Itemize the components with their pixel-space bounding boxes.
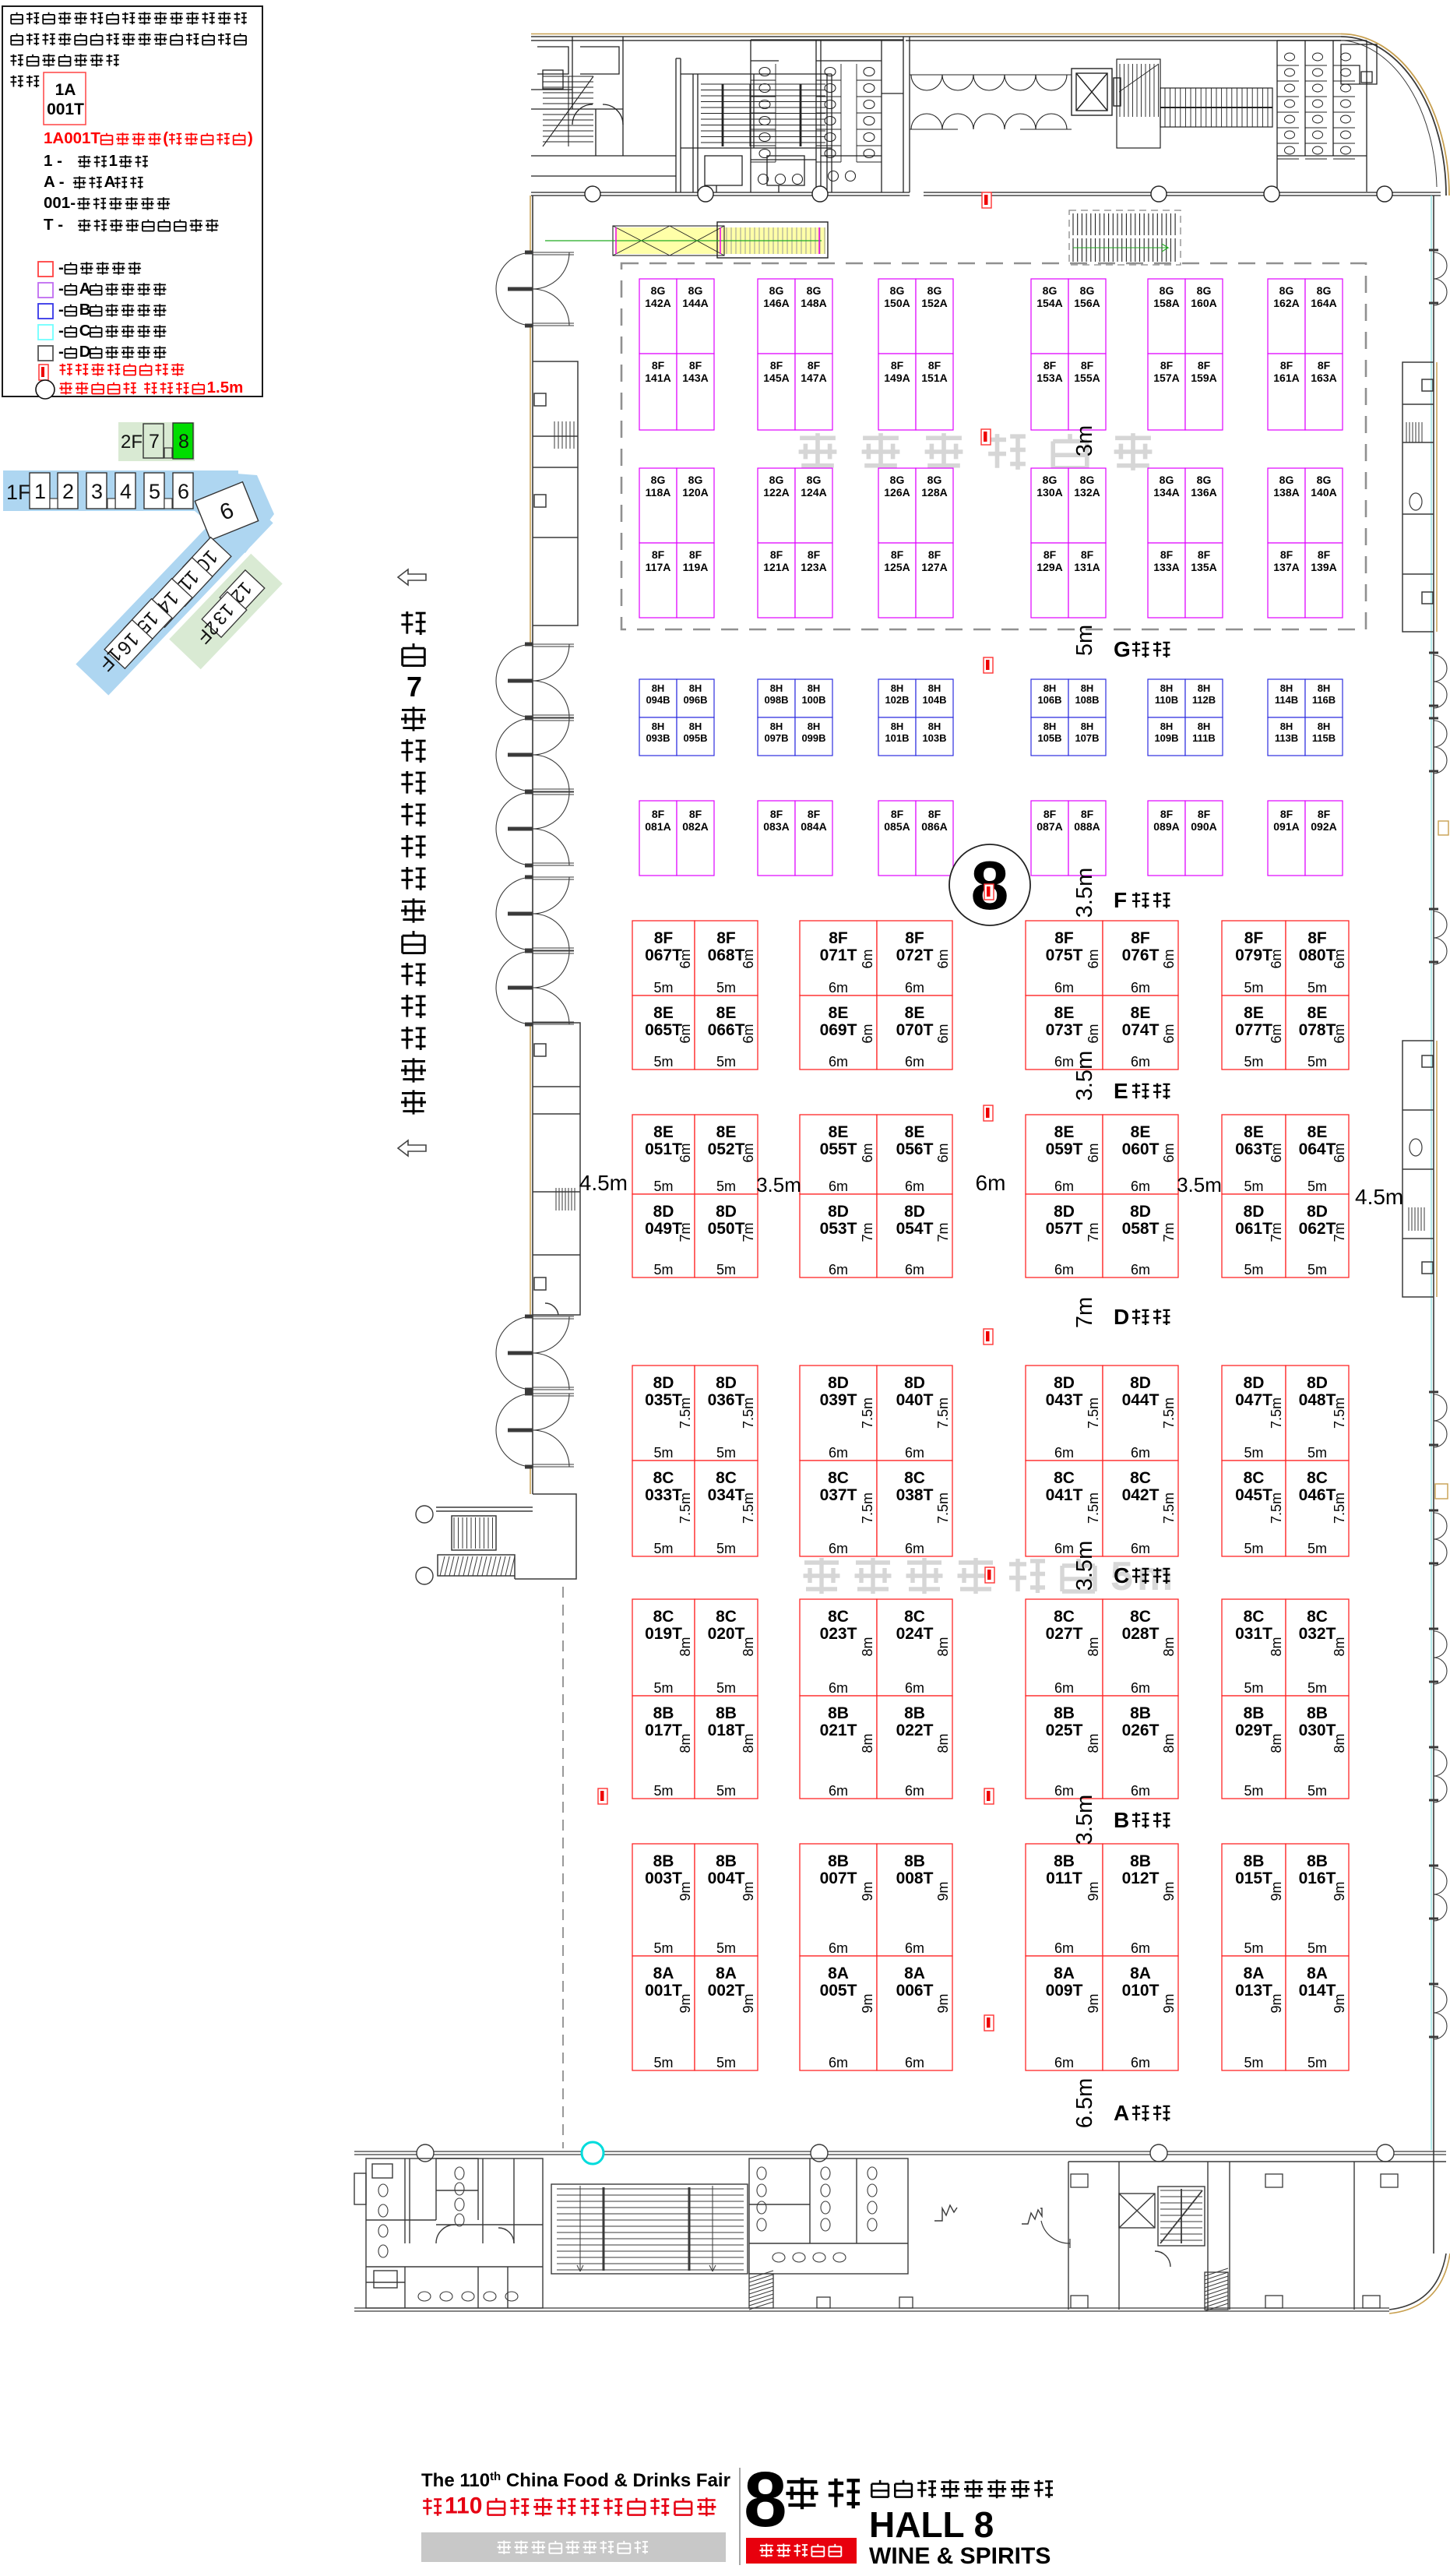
svg-text:6m: 6m (1054, 1680, 1074, 1696)
svg-text:8F: 8F (1160, 808, 1174, 820)
svg-text:5m: 5m (1307, 1940, 1327, 1956)
svg-text:-: - (58, 343, 64, 361)
svg-text:6m: 6m (935, 1024, 951, 1043)
svg-text:041T: 041T (1046, 1486, 1083, 1504)
svg-text:A: A (104, 173, 116, 191)
svg-text:6m: 6m (829, 1541, 848, 1556)
svg-text:8F: 8F (1280, 548, 1293, 561)
svg-text:8: 8 (744, 2456, 787, 2543)
svg-text:8B: 8B (653, 1704, 674, 1722)
svg-text:8H: 8H (1081, 721, 1094, 732)
svg-text:095B: 095B (683, 732, 707, 744)
svg-text:8D: 8D (716, 1203, 737, 1221)
svg-text:7: 7 (406, 671, 422, 703)
svg-text:009T: 009T (1046, 1982, 1083, 2000)
svg-text:6m: 6m (860, 1143, 875, 1162)
svg-text:6m: 6m (829, 1783, 848, 1799)
svg-text:159A: 159A (1191, 372, 1216, 384)
svg-text:The 110th China Food & Drinks: The 110th China Food & Drinks Fair (421, 2470, 730, 2491)
svg-text:128A: 128A (921, 486, 947, 499)
svg-text:8G: 8G (1160, 474, 1174, 486)
svg-text:8F: 8F (1198, 808, 1211, 820)
svg-text:8m: 8m (1086, 1637, 1101, 1656)
svg-text:8F: 8F (1081, 359, 1094, 372)
svg-text:9m: 9m (677, 1993, 693, 2013)
svg-text:008T: 008T (896, 1869, 934, 1887)
svg-text:HALL 8: HALL 8 (869, 2504, 994, 2545)
svg-text:086A: 086A (921, 820, 947, 833)
svg-text:8E: 8E (1307, 1004, 1328, 1022)
svg-text:9m: 9m (1332, 1881, 1347, 1901)
svg-text:A: A (1114, 2101, 1129, 2125)
svg-text:121A: 121A (763, 561, 789, 573)
svg-text:135A: 135A (1191, 561, 1216, 573)
svg-text:127A: 127A (921, 561, 947, 573)
svg-text:6m: 6m (905, 1783, 924, 1799)
svg-text:016T: 016T (1299, 1869, 1336, 1887)
svg-text:8m: 8m (1332, 1637, 1347, 1656)
svg-text:122A: 122A (763, 486, 789, 499)
svg-text:6m: 6m (1131, 1680, 1150, 1696)
svg-text:8E: 8E (1054, 1004, 1075, 1022)
svg-text:7.5m: 7.5m (741, 1397, 756, 1429)
svg-text:8F: 8F (1307, 929, 1327, 947)
svg-text:126A: 126A (884, 486, 910, 499)
svg-text:-: - (58, 301, 64, 319)
svg-text:8C: 8C (716, 1469, 737, 1487)
svg-text:6m: 6m (1054, 1445, 1074, 1461)
svg-text:8m: 8m (741, 1733, 756, 1753)
svg-text:6m: 6m (1086, 1143, 1101, 1162)
svg-text:8H: 8H (1081, 682, 1094, 694)
svg-text:6m: 6m (905, 1054, 924, 1070)
svg-text:005T: 005T (820, 1982, 857, 2000)
svg-text:045T: 045T (1235, 1486, 1272, 1504)
svg-text:119A: 119A (683, 561, 709, 573)
svg-text:E: E (1114, 1079, 1128, 1103)
svg-text:6m: 6m (935, 1143, 951, 1162)
svg-text:6m: 6m (1269, 949, 1284, 968)
svg-text:8B: 8B (1307, 1852, 1328, 1870)
svg-text:6m: 6m (1131, 1054, 1150, 1070)
svg-text:8G: 8G (927, 474, 942, 486)
svg-text:8F: 8F (1081, 548, 1094, 561)
svg-text:085A: 085A (884, 820, 910, 833)
svg-text:8G: 8G (651, 474, 666, 486)
svg-text:070T: 070T (896, 1021, 934, 1039)
svg-text:8G: 8G (1317, 284, 1332, 297)
svg-text:6m: 6m (1161, 1143, 1177, 1162)
svg-text:9m: 9m (677, 1881, 693, 1901)
svg-text:3: 3 (91, 480, 103, 503)
svg-text:8G: 8G (1197, 284, 1212, 297)
svg-text:B: B (79, 301, 91, 319)
svg-text:F: F (1114, 888, 1127, 912)
svg-text:102B: 102B (885, 694, 909, 706)
svg-text:6m: 6m (1332, 949, 1347, 968)
svg-text:8C: 8C (653, 1608, 674, 1626)
svg-text:103B: 103B (922, 732, 946, 744)
svg-text:106B: 106B (1037, 694, 1061, 706)
svg-text:7.5m: 7.5m (1086, 1397, 1101, 1429)
svg-text:007T: 007T (820, 1869, 857, 1887)
svg-text:078T: 078T (1299, 1021, 1336, 1039)
svg-text:8D: 8D (1054, 1203, 1075, 1221)
svg-text:8F: 8F (689, 548, 702, 561)
svg-text:6m: 6m (829, 1054, 848, 1070)
svg-text:5m: 5m (716, 1262, 736, 1277)
svg-text:8A: 8A (904, 1965, 925, 1982)
svg-text:8B: 8B (1130, 1852, 1151, 1870)
svg-text:8D: 8D (1130, 1374, 1151, 1392)
svg-text:6m: 6m (1269, 1024, 1284, 1043)
svg-text:8m: 8m (1269, 1637, 1284, 1656)
svg-text:6m: 6m (1054, 1179, 1074, 1194)
svg-text:9m: 9m (1269, 1881, 1284, 1901)
svg-text:T -: T - (44, 216, 63, 234)
svg-text:5m: 5m (1307, 1541, 1327, 1556)
svg-text:130A: 130A (1036, 486, 1062, 499)
svg-text:043T: 043T (1046, 1391, 1083, 1409)
svg-text:7m: 7m (1269, 1222, 1284, 1242)
svg-text:8F: 8F (928, 808, 941, 820)
svg-text:6m: 6m (829, 1262, 848, 1277)
svg-text:6m: 6m (677, 1143, 693, 1162)
svg-text:001T: 001T (47, 100, 84, 118)
svg-text:G: G (1114, 637, 1131, 661)
svg-text:6m: 6m (1086, 949, 1101, 968)
svg-text:022T: 022T (896, 1721, 934, 1739)
svg-text:146A: 146A (763, 297, 789, 309)
svg-text:3.5m: 3.5m (756, 1173, 801, 1196)
svg-text:8B: 8B (828, 1704, 849, 1722)
svg-text:8G: 8G (890, 284, 905, 297)
svg-text:033T: 033T (645, 1486, 682, 1504)
svg-text:8D: 8D (1130, 1203, 1151, 1221)
svg-text:163A: 163A (1311, 372, 1336, 384)
svg-text:5m: 5m (653, 980, 673, 996)
svg-text:055T: 055T (820, 1140, 857, 1158)
svg-text:6m: 6m (905, 1541, 924, 1556)
svg-text:123A: 123A (801, 561, 826, 573)
svg-text:3.5m: 3.5m (1072, 1795, 1097, 1845)
svg-text:094B: 094B (646, 694, 670, 706)
svg-text:136A: 136A (1191, 486, 1216, 499)
svg-text:7.5m: 7.5m (1086, 1492, 1101, 1524)
svg-text:3.5m: 3.5m (1072, 868, 1097, 918)
svg-text:8m: 8m (1161, 1733, 1177, 1753)
svg-text:5m: 5m (716, 1783, 736, 1799)
svg-text:8F: 8F (891, 359, 904, 372)
svg-text:8H: 8H (891, 682, 904, 694)
svg-text:6m: 6m (677, 1024, 693, 1043)
svg-text:8C: 8C (904, 1608, 925, 1626)
svg-text:120A: 120A (682, 486, 708, 499)
svg-text:6m: 6m (905, 1179, 924, 1194)
svg-text:019T: 019T (645, 1625, 682, 1643)
svg-text:6m: 6m (905, 2055, 924, 2070)
svg-text:1.5m: 1.5m (207, 379, 244, 396)
svg-text:8H: 8H (1044, 721, 1057, 732)
svg-text:8F: 8F (891, 808, 904, 820)
svg-text:6m: 6m (1054, 1783, 1074, 1799)
svg-text:8C: 8C (1244, 1608, 1265, 1626)
svg-text:5m: 5m (716, 980, 736, 996)
svg-text:017T: 017T (645, 1721, 682, 1739)
svg-text:8m: 8m (1332, 1733, 1347, 1753)
svg-text:134A: 134A (1153, 486, 1179, 499)
svg-text:8F: 8F (1160, 548, 1174, 561)
svg-text:9m: 9m (741, 1881, 756, 1901)
svg-text:090A: 090A (1191, 820, 1216, 833)
svg-text:059T: 059T (1046, 1140, 1083, 1158)
svg-text:8A: 8A (716, 1965, 737, 1982)
svg-text:025T: 025T (1046, 1721, 1083, 1739)
svg-text:5m: 5m (716, 1940, 736, 1956)
svg-text:8F: 8F (1044, 808, 1057, 820)
svg-text:140A: 140A (1311, 486, 1336, 499)
svg-text:8E: 8E (829, 1004, 849, 1022)
svg-text:079T: 079T (1235, 946, 1272, 964)
svg-text:8E: 8E (1131, 1004, 1151, 1022)
svg-text:8F: 8F (891, 548, 904, 561)
svg-text:8G: 8G (1279, 474, 1294, 486)
svg-text:116B: 116B (1312, 694, 1336, 706)
svg-text:8m: 8m (1269, 1733, 1284, 1753)
svg-text:8G: 8G (688, 474, 703, 486)
svg-text:6m: 6m (1131, 1262, 1150, 1277)
svg-text:048T: 048T (1299, 1391, 1336, 1409)
svg-text:8G: 8G (890, 474, 905, 486)
svg-text:5m: 5m (653, 1541, 673, 1556)
svg-text:2: 2 (62, 480, 74, 503)
svg-text:5m: 5m (1244, 1940, 1263, 1956)
svg-text:110: 110 (445, 2493, 482, 2518)
svg-text:C: C (1114, 1563, 1129, 1588)
svg-text:8G: 8G (1043, 284, 1058, 297)
svg-text:1: 1 (34, 480, 46, 503)
svg-text:6m: 6m (1161, 1024, 1177, 1043)
svg-text:074T: 074T (1122, 1021, 1160, 1039)
svg-text:8C: 8C (1054, 1469, 1075, 1487)
svg-text:036T: 036T (708, 1391, 745, 1409)
svg-text:124A: 124A (801, 486, 826, 499)
svg-text:8G: 8G (1043, 474, 1058, 486)
svg-text:110B: 110B (1155, 694, 1178, 706)
svg-text:8E: 8E (829, 1123, 849, 1141)
svg-text:8F: 8F (928, 359, 941, 372)
svg-text:129A: 129A (1036, 561, 1062, 573)
svg-text:7: 7 (149, 431, 160, 453)
svg-text:8H: 8H (891, 721, 904, 732)
svg-text:4.5m: 4.5m (579, 1171, 628, 1195)
svg-text:8F: 8F (1318, 808, 1331, 820)
svg-text:9m: 9m (1161, 1993, 1177, 2013)
svg-text:020T: 020T (708, 1625, 745, 1643)
svg-text:109B: 109B (1154, 732, 1178, 744)
svg-text:050T: 050T (708, 1220, 745, 1238)
svg-text:1F: 1F (6, 481, 31, 504)
svg-text:8F: 8F (689, 359, 702, 372)
svg-text:8m: 8m (935, 1733, 951, 1753)
svg-text:8G: 8G (1160, 284, 1174, 297)
svg-text:8D: 8D (904, 1374, 925, 1392)
svg-text:): ) (248, 129, 253, 147)
svg-text:8G: 8G (769, 284, 784, 297)
svg-text:6m: 6m (976, 1171, 1006, 1195)
svg-text:068T: 068T (708, 946, 745, 964)
svg-text:8E: 8E (905, 1004, 925, 1022)
svg-text:8F: 8F (1160, 359, 1174, 372)
svg-text:5m: 5m (1244, 1541, 1263, 1556)
svg-text:7.5m: 7.5m (1269, 1492, 1284, 1524)
svg-text:040T: 040T (896, 1391, 934, 1409)
svg-text:8E: 8E (653, 1123, 674, 1141)
svg-text:9m: 9m (741, 1993, 756, 2013)
svg-text:001-: 001- (44, 194, 76, 212)
svg-text:034T: 034T (708, 1486, 745, 1504)
svg-text:137A: 137A (1273, 561, 1299, 573)
svg-text:8m: 8m (677, 1733, 693, 1753)
svg-text:6m: 6m (1131, 1179, 1150, 1194)
svg-text:8E: 8E (1054, 1123, 1075, 1141)
svg-text:6m: 6m (860, 1024, 875, 1043)
svg-text:8A: 8A (1054, 1965, 1075, 1982)
svg-text:8D: 8D (1054, 1374, 1075, 1392)
svg-text:9m: 9m (1269, 1993, 1284, 2013)
svg-text:8H: 8H (1318, 721, 1331, 732)
svg-text:5m: 5m (716, 1445, 736, 1461)
svg-text:8E: 8E (1244, 1123, 1264, 1141)
svg-text:139A: 139A (1311, 561, 1336, 573)
svg-text:-: - (58, 259, 64, 277)
svg-text:5m: 5m (1244, 1680, 1263, 1696)
svg-text:7m: 7m (935, 1222, 951, 1242)
svg-text:7.5m: 7.5m (677, 1397, 693, 1429)
svg-text:C: C (79, 322, 91, 340)
svg-text:6m: 6m (1054, 980, 1074, 996)
svg-text:8F: 8F (1318, 359, 1331, 372)
svg-text:8F: 8F (928, 548, 941, 561)
svg-text:8G: 8G (1080, 284, 1095, 297)
svg-text:8F: 8F (1280, 359, 1293, 372)
svg-text:004T: 004T (708, 1869, 745, 1887)
svg-text:5m: 5m (1244, 1262, 1263, 1277)
svg-text:5m: 5m (653, 1179, 673, 1194)
svg-text:8F: 8F (652, 359, 665, 372)
svg-text:011T: 011T (1046, 1869, 1082, 1887)
svg-text:6m: 6m (677, 949, 693, 968)
svg-text:5m: 5m (716, 1541, 736, 1556)
svg-text:8A: 8A (653, 1965, 674, 1982)
svg-text:8H: 8H (689, 721, 702, 732)
svg-text:7m: 7m (1086, 1222, 1101, 1242)
svg-text:097B: 097B (764, 732, 788, 744)
svg-text:8H: 8H (1280, 721, 1293, 732)
svg-text:006T: 006T (896, 1982, 934, 2000)
svg-text:098B: 098B (764, 694, 788, 706)
svg-text:8C: 8C (1054, 1608, 1075, 1626)
svg-text:8B: 8B (1244, 1852, 1265, 1870)
svg-text:(: ( (163, 129, 168, 147)
svg-text:8F: 8F (689, 808, 702, 820)
svg-text:6m: 6m (829, 980, 848, 996)
svg-text:5m: 5m (653, 1680, 673, 1696)
svg-text:8H: 8H (1280, 682, 1293, 694)
svg-text:8B: 8B (1054, 1852, 1075, 1870)
svg-text:027T: 027T (1046, 1625, 1083, 1643)
svg-text:8A: 8A (1307, 1965, 1328, 1982)
svg-text:076T: 076T (1122, 946, 1160, 964)
svg-text:6m: 6m (860, 949, 875, 968)
svg-text:B: B (1114, 1808, 1129, 1832)
svg-text:044T: 044T (1122, 1391, 1160, 1409)
svg-text:D: D (79, 343, 91, 361)
svg-text:042T: 042T (1122, 1486, 1160, 1504)
svg-text:8G: 8G (1317, 474, 1332, 486)
svg-text:6m: 6m (1086, 1024, 1101, 1043)
svg-text:-: - (58, 322, 64, 340)
svg-text:8E: 8E (1244, 1004, 1264, 1022)
svg-text:8F: 8F (808, 808, 821, 820)
svg-text:087A: 087A (1036, 820, 1062, 833)
svg-text:5m: 5m (1307, 1054, 1327, 1070)
svg-text:8C: 8C (828, 1469, 849, 1487)
svg-text:158A: 158A (1153, 297, 1179, 309)
svg-text:056T: 056T (896, 1140, 934, 1158)
svg-text:024T: 024T (896, 1625, 934, 1643)
svg-text:8H: 8H (808, 682, 821, 694)
svg-text:117A: 117A (646, 561, 671, 573)
svg-text:8D: 8D (1307, 1203, 1328, 1221)
svg-text:8G: 8G (1080, 474, 1095, 486)
svg-text:084A: 084A (801, 820, 826, 833)
svg-text:151A: 151A (921, 372, 947, 384)
svg-text:132A: 132A (1074, 486, 1100, 499)
svg-text:8C: 8C (1130, 1469, 1151, 1487)
svg-text:6m: 6m (905, 980, 924, 996)
svg-text:023T: 023T (820, 1625, 857, 1643)
svg-text:046T: 046T (1299, 1486, 1336, 1504)
svg-text:5m: 5m (653, 1262, 673, 1277)
svg-text:164A: 164A (1311, 297, 1336, 309)
svg-text:089A: 089A (1153, 820, 1179, 833)
svg-text:6m: 6m (829, 1940, 848, 1956)
svg-text:6m: 6m (1054, 1940, 1074, 1956)
svg-text:018T: 018T (708, 1721, 745, 1739)
svg-text:003T: 003T (645, 1869, 682, 1887)
svg-text:8m: 8m (860, 1733, 875, 1753)
svg-text:5m: 5m (653, 1054, 673, 1070)
svg-text:096B: 096B (683, 694, 707, 706)
svg-text:071T: 071T (820, 946, 857, 964)
svg-text:153A: 153A (1036, 372, 1062, 384)
svg-text:1 -: 1 - (44, 152, 62, 170)
svg-text:6m: 6m (1054, 1054, 1074, 1070)
svg-text:149A: 149A (884, 372, 910, 384)
svg-text:5m: 5m (1307, 1680, 1327, 1696)
svg-text:152A: 152A (921, 297, 947, 309)
svg-text:013T: 013T (1235, 1982, 1272, 2000)
svg-text:037T: 037T (820, 1486, 857, 1504)
svg-text:8H: 8H (1160, 682, 1174, 694)
svg-text:8C: 8C (828, 1608, 849, 1626)
svg-text:8F: 8F (652, 808, 665, 820)
svg-text:145A: 145A (763, 372, 789, 384)
svg-text:092A: 092A (1311, 820, 1336, 833)
svg-text:8D: 8D (716, 1374, 737, 1392)
svg-text:6m: 6m (935, 949, 951, 968)
